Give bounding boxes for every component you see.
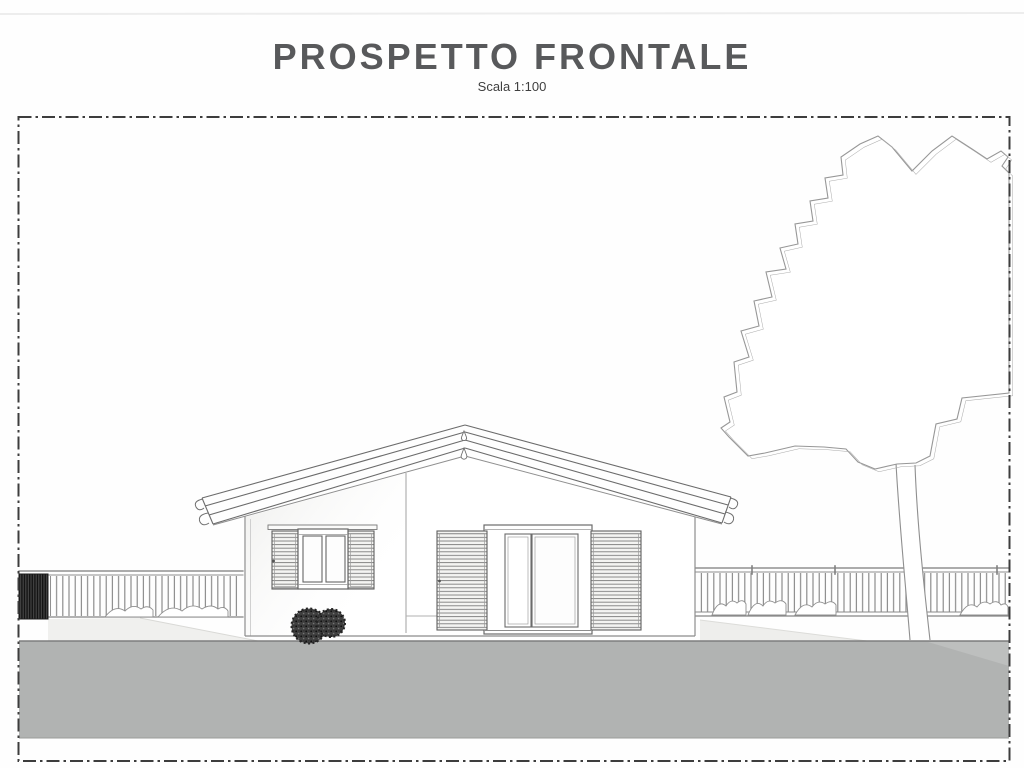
house	[195, 425, 737, 636]
shutter-hinge	[272, 560, 275, 563]
bush	[317, 609, 345, 637]
window	[268, 525, 377, 589]
ground-shadow-left	[48, 618, 258, 641]
tree	[721, 136, 1013, 640]
sliding-door	[437, 525, 641, 634]
masonry-pillar	[19, 574, 48, 619]
tree-trunk-fill	[896, 463, 930, 640]
door-right-shutter	[591, 531, 641, 630]
ridge-finial	[461, 448, 467, 459]
window-pane	[326, 536, 345, 582]
elevation-drawing	[0, 0, 1024, 768]
door-left-shutter	[437, 531, 487, 630]
window-left-shutter	[272, 531, 298, 589]
door-sliding-panel	[505, 534, 531, 627]
left-fence	[19, 571, 243, 619]
right-fence	[695, 566, 1009, 616]
ground-fill	[19, 641, 1009, 738]
door-glass-panel	[532, 534, 578, 627]
bushes	[292, 609, 346, 644]
window-right-shutter	[348, 531, 374, 589]
shutter-hinge	[438, 580, 441, 583]
window-pane	[303, 536, 322, 582]
scan-artifact-line	[0, 13, 1024, 14]
tree-canopy	[721, 136, 1009, 469]
